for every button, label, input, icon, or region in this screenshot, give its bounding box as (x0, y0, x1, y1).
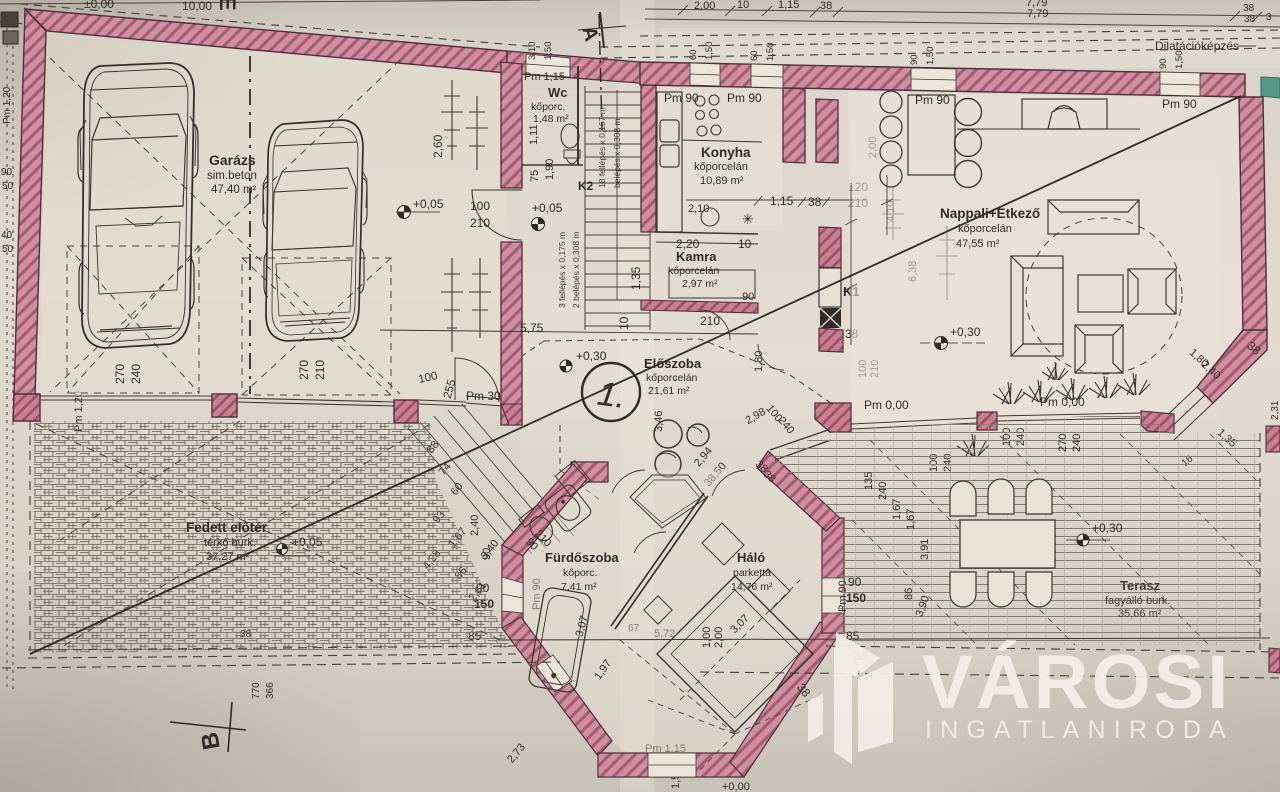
svg-text:1,15: 1,15 (778, 0, 799, 11)
svg-text:35,66 m²: 35,66 m² (1118, 608, 1162, 620)
svg-text:21,61 m²: 21,61 m² (648, 385, 690, 397)
svg-text:366: 366 (265, 682, 276, 699)
svg-text:90: 90 (742, 291, 754, 303)
svg-text:240: 240 (129, 364, 143, 384)
svg-text:90: 90 (1158, 58, 1169, 69)
svg-text:3,10: 3,10 (527, 42, 538, 61)
svg-text:+0,05: +0,05 (292, 535, 323, 549)
svg-text:10: 10 (738, 237, 752, 251)
svg-text:50: 50 (2, 244, 14, 255)
svg-text:60: 60 (749, 50, 760, 61)
svg-text:38: 38 (808, 195, 822, 209)
svg-text:47,40 m²: 47,40 m² (211, 184, 257, 196)
svg-text:37,27 m²: 37,27 m² (206, 551, 250, 563)
svg-text:1,50: 1,50 (765, 43, 776, 62)
svg-text:2,60: 2,60 (431, 134, 445, 158)
svg-text:kőporcelán: kőporcelán (958, 223, 1012, 235)
svg-text:5,75: 5,75 (520, 321, 544, 335)
svg-text:1,50: 1,50 (543, 42, 554, 61)
svg-text:Pm 0,00: Pm 0,00 (864, 398, 909, 412)
svg-text:2,40: 2,40 (469, 515, 481, 536)
svg-text:1,35: 1,35 (629, 266, 643, 290)
svg-text:1,80: 1,80 (753, 351, 765, 372)
svg-text:135: 135 (863, 472, 875, 490)
svg-text:240: 240 (877, 482, 889, 500)
svg-text:Fedett előtér: Fedett előtér (186, 520, 268, 535)
svg-text:3,91: 3,91 (919, 539, 931, 560)
svg-text:kőporc.: kőporc. (563, 567, 597, 579)
svg-text:10: 10 (617, 316, 631, 330)
svg-text:Konyha: Konyha (701, 145, 751, 160)
svg-text:10,89 m²: 10,89 m² (700, 175, 744, 187)
svg-text:40: 40 (1, 230, 13, 241)
svg-text:50: 50 (2, 181, 14, 192)
svg-text:47,55 m²: 47,55 m² (956, 238, 1000, 250)
svg-text:270: 270 (1057, 434, 1069, 452)
svg-text:Fürdőszoba: Fürdőszoba (545, 550, 619, 565)
svg-text:belépés x 0,308 m: belépés x 0,308 m (612, 119, 622, 188)
svg-text:Wc: Wc (548, 85, 568, 100)
svg-text:1,67: 1,67 (891, 499, 903, 520)
svg-text:Pm 1,20: Pm 1,20 (2, 86, 13, 124)
svg-text:3: 3 (1266, 12, 1272, 23)
svg-text:+0,00: +0,00 (722, 781, 750, 792)
svg-text:75: 75 (529, 170, 541, 182)
svg-text:1,50: 1,50 (1174, 51, 1185, 70)
svg-text:2,20: 2,20 (676, 237, 700, 251)
svg-text:kőporcelán: kőporcelán (646, 372, 698, 384)
svg-text:+0,30: +0,30 (1092, 521, 1123, 535)
svg-text:90: 90 (909, 54, 920, 65)
svg-text:150: 150 (846, 591, 866, 605)
svg-text:E: E (215, 0, 240, 11)
svg-text:✳: ✳ (742, 211, 754, 227)
svg-text:270: 270 (297, 360, 311, 380)
svg-text:+0,05: +0,05 (532, 201, 563, 215)
svg-text:1,50: 1,50 (704, 42, 715, 61)
svg-text:1,67: 1,67 (905, 509, 917, 530)
svg-text:Pm 90: Pm 90 (664, 91, 699, 105)
svg-text:2 belépés x 0,308 m: 2 belépés x 0,308 m (571, 231, 581, 308)
svg-text:3 fellépés x 0,175 m: 3 fellépés x 0,175 m (557, 232, 567, 308)
svg-text:18 fellépés x 0,167 m: 18 fellépés x 0,167 m (597, 107, 607, 188)
svg-text:1,00: 1,00 (701, 627, 713, 648)
svg-text:270: 270 (113, 364, 127, 384)
svg-text:10: 10 (737, 0, 749, 11)
svg-text:90: 90 (481, 548, 493, 560)
svg-text:INGATLANIRODA: INGATLANIRODA (925, 716, 1234, 744)
svg-text:1,11: 1,11 (528, 124, 540, 145)
svg-text:1,90: 1,90 (544, 159, 556, 180)
svg-text:210: 210 (313, 360, 327, 380)
svg-text:Pm 90: Pm 90 (727, 91, 762, 105)
svg-text:fagyálló burk.: fagyálló burk. (1105, 595, 1170, 607)
svg-text:+0,30: +0,30 (950, 325, 981, 339)
svg-text:60: 60 (688, 49, 699, 60)
svg-text:14,76 m²: 14,76 m² (731, 581, 773, 593)
svg-text:Háló: Háló (737, 550, 765, 565)
svg-text:38: 38 (820, 0, 832, 12)
svg-text:1,15: 1,15 (770, 194, 794, 208)
svg-text:kőporcelán: kőporcelán (668, 265, 720, 277)
svg-text:2,00: 2,00 (694, 0, 715, 12)
svg-text:38: 38 (1244, 14, 1256, 25)
svg-text:3,46: 3,46 (653, 411, 665, 432)
svg-text:1,48 m²: 1,48 m² (533, 113, 569, 125)
svg-text:90: 90 (848, 575, 862, 589)
svg-text:770: 770 (251, 682, 262, 699)
svg-text:Terasz: Terasz (1120, 578, 1161, 593)
svg-text:38: 38 (1243, 3, 1255, 14)
svg-text:térkő burk.: térkő burk. (204, 537, 256, 549)
svg-text:kőporc.: kőporc. (531, 101, 565, 113)
svg-text:1,50: 1,50 (925, 47, 936, 66)
svg-text:Kamra: Kamra (676, 249, 717, 264)
svg-text:90: 90 (1, 167, 13, 178)
svg-text:K2: K2 (578, 179, 594, 193)
svg-text:210: 210 (700, 314, 720, 328)
svg-text:Pm 90: Pm 90 (1162, 97, 1197, 111)
svg-text:86: 86 (903, 588, 915, 600)
svg-text:Pm 1,15: Pm 1,15 (524, 71, 565, 83)
svg-text:240: 240 (1071, 434, 1083, 452)
svg-text:Pm 30: Pm 30 (466, 389, 501, 403)
svg-text:2,31: 2,31 (1270, 400, 1280, 420)
svg-text:Dilatációképzés: Dilatációképzés (1155, 39, 1239, 53)
svg-text:2,00: 2,00 (713, 627, 725, 648)
svg-text:Nappali+Étkező: Nappali+Étkező (940, 206, 1040, 221)
svg-text:2,97 m²: 2,97 m² (682, 278, 718, 290)
svg-text:sim.beton: sim.beton (207, 170, 257, 182)
svg-text:7,79: 7,79 (1027, 8, 1048, 20)
svg-text:VÁROSI: VÁROSI (922, 640, 1231, 725)
svg-text:parketta: parketta (733, 567, 771, 579)
svg-text:7,41 m²: 7,41 m² (561, 581, 597, 593)
svg-text:kőporcelán: kőporcelán (694, 161, 748, 173)
svg-text:+0,05: +0,05 (413, 197, 444, 211)
svg-text:Garázs: Garázs (209, 152, 256, 168)
svg-text:2,10: 2,10 (688, 203, 709, 215)
svg-text:+0,30: +0,30 (576, 349, 607, 363)
svg-text:10,00: 10,00 (182, 0, 212, 13)
svg-text:±0,00: ±0,00 (84, 0, 114, 11)
